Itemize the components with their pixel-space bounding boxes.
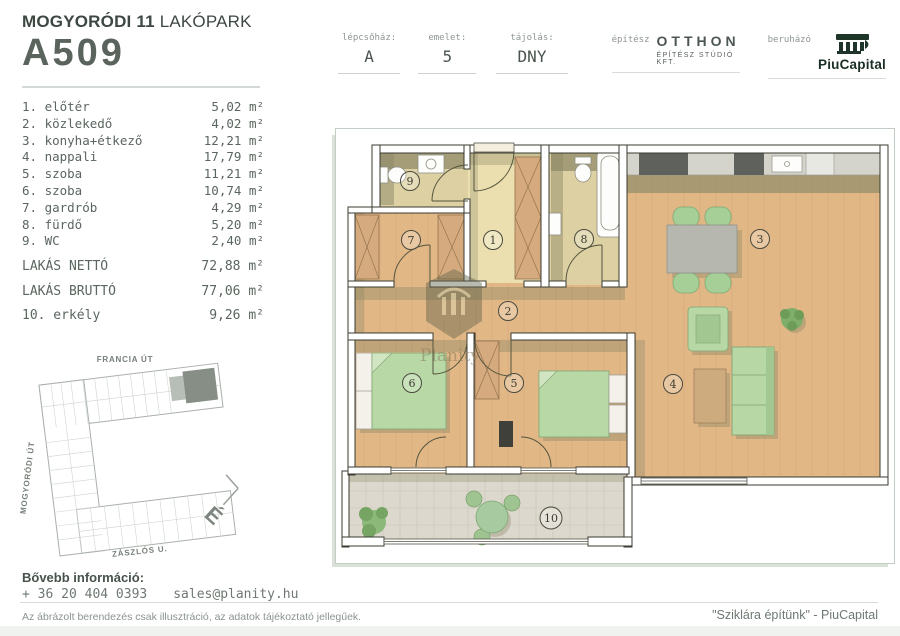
email-address: sales@planity.hu bbox=[173, 587, 298, 602]
room-label-3: 3 bbox=[751, 230, 770, 249]
phone-number: + 36 20 404 0393 bbox=[22, 587, 147, 602]
room-label-5: 5 bbox=[505, 374, 524, 393]
svg-text:6: 6 bbox=[409, 377, 416, 390]
room-row: 3. konyha+étkező12,21 m² bbox=[22, 133, 264, 150]
room-label-7: 7 bbox=[402, 231, 421, 250]
contact-line: + 36 20 404 0393sales@planity.hu bbox=[22, 587, 324, 602]
street-label-left: MOGYORÓDI ÚT bbox=[19, 441, 37, 515]
architect-name: OTTHON bbox=[657, 33, 740, 49]
room-label-4: 4 bbox=[664, 375, 683, 394]
sofa bbox=[732, 347, 774, 435]
info-floor: emelet: 5 bbox=[418, 33, 476, 74]
entry-threshold bbox=[474, 143, 514, 152]
room-row: 2. közlekedő4,02 m² bbox=[22, 116, 264, 133]
room-row: 7. gardrób4,29 m² bbox=[22, 200, 264, 217]
svg-text:4: 4 bbox=[670, 378, 677, 391]
unit-id: A509 bbox=[22, 32, 125, 75]
floor-plan: Planity 1 2 3 4 5 6 7 8 9 10 bbox=[336, 129, 894, 563]
kitchen-sink bbox=[772, 156, 802, 172]
project-title: MOGYORÓDI 11 LAKÓPARK bbox=[22, 12, 252, 32]
disclaimer-text: Az ábrázolt berendezés csak illusztráció… bbox=[22, 611, 361, 623]
floorplan-flyer: { "header": { "project_bold": "MOGYORÓDI… bbox=[0, 0, 900, 636]
footer-divider bbox=[20, 602, 878, 603]
coffee-table bbox=[694, 369, 726, 423]
balcony-row: 10. erkély9,26 m² bbox=[22, 308, 264, 325]
brand-quote: "Sziklára építünk" - PiuCapital bbox=[712, 608, 878, 622]
info-staircase: lépcsőház: A bbox=[338, 33, 400, 74]
washer bbox=[418, 155, 444, 173]
svg-text:9: 9 bbox=[407, 175, 414, 188]
svg-text:1: 1 bbox=[490, 234, 497, 247]
room-label-1: 1 bbox=[484, 231, 503, 250]
svg-text:2: 2 bbox=[505, 305, 512, 318]
room-label-10: 10 bbox=[540, 507, 562, 529]
architect-subname: ÉPÍTÉSZ STÚDIÓ KFT. bbox=[657, 52, 740, 66]
balcony-table bbox=[476, 501, 508, 533]
tv-unit bbox=[499, 421, 513, 447]
site-plan: FRANCIA ÚT MOGYORÓDI ÚT ZÁSZLÓS U. bbox=[10, 338, 265, 566]
floor-plan-card: Planity 1 2 3 4 5 6 7 8 9 10 bbox=[335, 128, 895, 564]
room-row: 4. nappali17,79 m² bbox=[22, 149, 264, 166]
room-list: 1. előtér5,02 m² 2. közlekedő4,02 m² 3. … bbox=[22, 99, 264, 325]
room-row: 9. WC2,40 m² bbox=[22, 233, 264, 250]
architect-block: építész OTTHON ÉPÍTÉSZ STÚDIÓ KFT. bbox=[612, 33, 740, 73]
room-label-6: 6 bbox=[403, 374, 422, 393]
highlight-unit-adjacent bbox=[169, 376, 186, 402]
room-label-9: 9 bbox=[401, 172, 420, 191]
svg-text:10: 10 bbox=[544, 512, 558, 525]
project-title-bold: MOGYORÓDI 11 bbox=[22, 12, 155, 31]
developer-block: beruházó PiuCapital bbox=[768, 33, 886, 79]
planity-watermark: Planity bbox=[420, 269, 482, 366]
svg-text:3: 3 bbox=[757, 233, 764, 246]
more-info-title: Bővebb információ: bbox=[22, 570, 144, 585]
watermark-text: Planity bbox=[420, 346, 480, 366]
kitchen-counter bbox=[627, 153, 884, 175]
unit-info-bar: lépcsőház: A emelet: 5 tájolás: DNY épít… bbox=[338, 33, 886, 79]
net-area-row: LAKÁS NETTÓ72,88 m² bbox=[22, 258, 264, 275]
info-orientation: tájolás: DNY bbox=[496, 33, 567, 74]
room-row: 8. fürdő5,20 m² bbox=[22, 217, 264, 234]
unit-underline bbox=[22, 86, 260, 88]
street-label-top: FRANCIA ÚT bbox=[97, 355, 154, 364]
room-row: 5. szoba11,21 m² bbox=[22, 166, 264, 183]
gross-area-row: LAKÁS BRUTTÓ77,06 m² bbox=[22, 283, 264, 300]
room-row: 6. szoba10,74 m² bbox=[22, 183, 264, 200]
project-title-light: LAKÓPARK bbox=[155, 12, 252, 31]
svg-text:5: 5 bbox=[511, 377, 518, 390]
room-label-2: 2 bbox=[499, 302, 518, 321]
highlighted-unit bbox=[182, 368, 218, 404]
bottom-strip bbox=[0, 626, 900, 636]
room-label-8: 8 bbox=[575, 230, 594, 249]
room-row: 1. előtér5,02 m² bbox=[22, 99, 264, 116]
svg-text:8: 8 bbox=[581, 233, 588, 246]
piucapital-logo-icon bbox=[832, 33, 872, 55]
developer-name: PiuCapital bbox=[818, 57, 886, 72]
svg-text:7: 7 bbox=[408, 234, 415, 247]
dining-table bbox=[667, 225, 737, 273]
